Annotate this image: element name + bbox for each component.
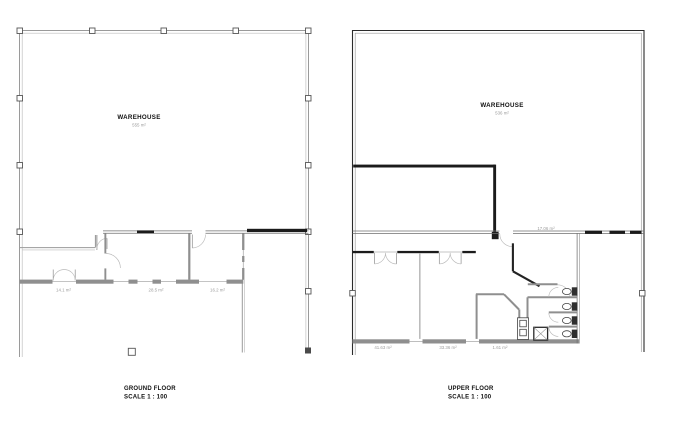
dock-wall — [247, 229, 307, 232]
perimeter-walls — [350, 31, 645, 356]
upper-floor-plan: WAREHOUSE 536 m² 41.63 m² 33.36 m² 1.61 … — [350, 31, 645, 401]
bathroom — [518, 233, 580, 343]
warehouse-bottom-wall — [103, 229, 309, 234]
warehouse-interior-wall — [353, 165, 498, 240]
double-door — [375, 253, 397, 264]
sink-counter — [518, 318, 529, 340]
elevator-shaft-icon — [534, 327, 548, 340]
free-column — [128, 348, 135, 355]
column-markers — [17, 28, 311, 354]
warehouse-label: WAREHOUSE 555 m² — [117, 114, 160, 128]
double-door — [53, 270, 77, 285]
door-swing — [192, 235, 205, 249]
warehouse-label: WAREHOUSE 536 m² — [480, 102, 523, 116]
room-area-label: 33.36 m² — [439, 345, 457, 350]
column-marker — [350, 291, 356, 297]
room-area-labels: 14.1 m² 28.5 m² 16.2 m² — [56, 288, 225, 293]
plan-title: UPPER FLOOR — [448, 386, 494, 392]
toilet-icon — [562, 316, 577, 324]
office-strip-walls — [20, 233, 245, 352]
room-area-label: 41.63 m² — [374, 345, 392, 350]
room-area-label: 536 m² — [495, 111, 509, 116]
room-area-label: 14.1 m² — [56, 288, 71, 293]
room-area-label: 28.5 m² — [149, 288, 164, 293]
middle-room-walls — [476, 294, 519, 339]
perimeter-walls — [20, 31, 309, 358]
room-area-label: 555 m² — [132, 123, 146, 128]
plan-scale: SCALE 1 : 100 — [448, 395, 492, 401]
window-lintel — [137, 230, 154, 233]
toilet-icon — [562, 302, 577, 310]
wall-end-post — [305, 348, 311, 354]
door-swing — [106, 254, 121, 269]
ground-floor-plan: WAREHOUSE 555 m² 14.1 m² 28.5 m² 16.2 m²… — [17, 28, 311, 401]
double-door — [439, 253, 461, 264]
room-area-label: 17.06 m² — [537, 226, 555, 231]
stairwell-walls — [513, 243, 540, 286]
door-swing — [500, 234, 513, 247]
room-name: WAREHOUSE — [117, 114, 160, 121]
room-name: WAREHOUSE — [480, 102, 523, 109]
room-area-label: 16.2 m² — [210, 288, 225, 293]
column-marker — [640, 291, 646, 297]
floor-plan-sheet: WAREHOUSE 555 m² 14.1 m² 28.5 m² 16.2 m²… — [0, 0, 700, 431]
toilet-icon — [562, 330, 577, 338]
plan-title-block: GROUND FLOOR SCALE 1 : 100 — [124, 386, 176, 401]
plan-title: GROUND FLOOR — [124, 386, 176, 392]
plan-scale: SCALE 1 : 100 — [124, 395, 168, 401]
window-lintel — [585, 231, 642, 234]
plan-title-block: UPPER FLOOR SCALE 1 : 100 — [448, 386, 494, 401]
floor-plan-drawing: WAREHOUSE 555 m² 14.1 m² 28.5 m² 16.2 m²… — [0, 0, 700, 431]
room-area-label: 1.61 m² — [493, 345, 508, 350]
